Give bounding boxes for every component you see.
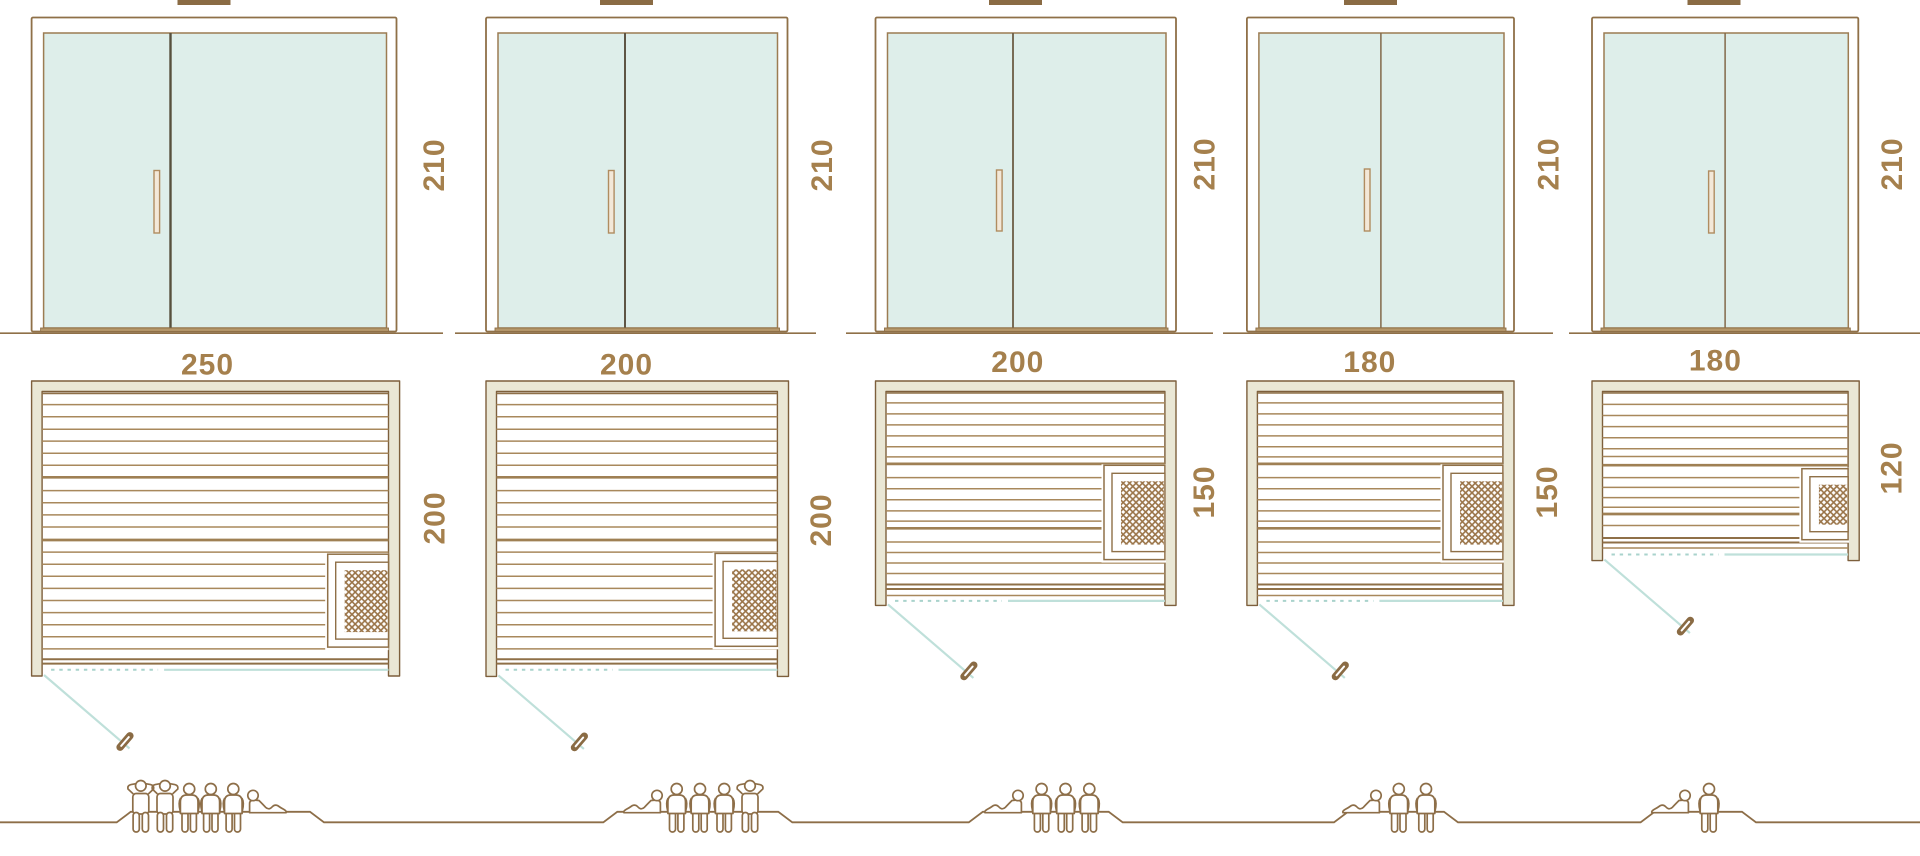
svg-text:180: 180 [1343, 346, 1396, 379]
svg-text:210: 210 [1189, 137, 1222, 190]
svg-text:210: 210 [806, 138, 839, 191]
svg-text:150: 150 [1188, 465, 1221, 518]
svg-text:250: 250 [181, 349, 234, 382]
svg-text:210: 210 [418, 138, 451, 191]
svg-text:120: 120 [1875, 441, 1908, 494]
svg-text:150: 150 [1531, 465, 1564, 518]
svg-text:210: 210 [1533, 137, 1566, 190]
svg-text:200: 200 [419, 491, 452, 544]
svg-text:200: 200 [805, 493, 838, 546]
svg-text:210: 210 [1876, 137, 1909, 190]
svg-text:200: 200 [991, 346, 1044, 379]
svg-text:180: 180 [1689, 345, 1742, 378]
svg-text:200: 200 [600, 349, 653, 382]
